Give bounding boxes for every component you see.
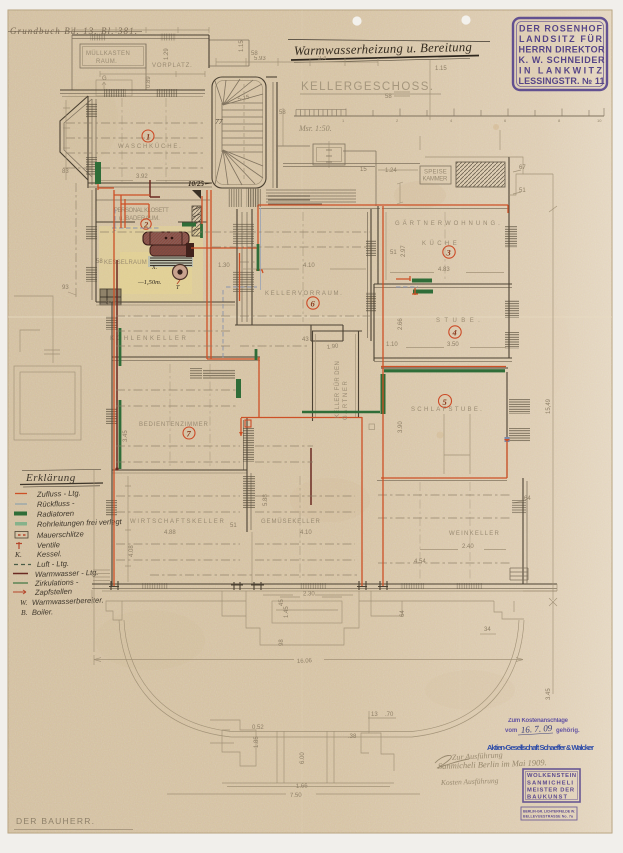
svg-text:Luft - Ltg.: Luft - Ltg. bbox=[37, 559, 69, 569]
svg-text:7.50: 7.50 bbox=[290, 793, 303, 799]
svg-text:—1,50m.: —1,50m. bbox=[137, 279, 162, 286]
svg-text:4.83: 4.83 bbox=[438, 267, 450, 273]
svg-text:45: 45 bbox=[279, 599, 285, 606]
svg-text:2.66: 2.66 bbox=[398, 318, 404, 330]
svg-text:51: 51 bbox=[390, 250, 397, 256]
svg-text:RAUM.: RAUM. bbox=[96, 59, 118, 65]
svg-text:2.4: 2.4 bbox=[318, 56, 327, 62]
svg-text:58: 58 bbox=[279, 110, 286, 116]
svg-text:BAUKUNST: BAUKUNST bbox=[527, 795, 567, 801]
svg-text:1.29: 1.29 bbox=[164, 48, 170, 60]
svg-text:LESSINGSTR. № 11: LESSINGSTR. № 11 bbox=[519, 76, 605, 86]
svg-text:2.30: 2.30 bbox=[303, 592, 315, 598]
svg-text:15,49: 15,49 bbox=[546, 398, 552, 414]
svg-text:51: 51 bbox=[230, 523, 237, 529]
svg-text:64: 64 bbox=[400, 610, 406, 617]
svg-text:3.50: 3.50 bbox=[447, 342, 459, 348]
svg-text:13: 13 bbox=[371, 712, 378, 718]
svg-text:10/25: 10/25 bbox=[188, 180, 204, 188]
svg-text:WOLKENSTEIN: WOLKENSTEIN bbox=[527, 773, 576, 779]
svg-text:VORPLATZ.: VORPLATZ. bbox=[152, 63, 193, 69]
svg-text:93: 93 bbox=[62, 285, 69, 291]
svg-text:83: 83 bbox=[62, 169, 69, 175]
svg-text:Kessel.: Kessel. bbox=[37, 549, 62, 559]
svg-text:HERRN DIREKTOR: HERRN DIREKTOR bbox=[519, 45, 606, 55]
svg-text:Zapfstellen: Zapfstellen bbox=[34, 587, 72, 597]
svg-text:1.45: 1.45 bbox=[284, 606, 290, 618]
svg-text:5.93: 5.93 bbox=[254, 56, 266, 62]
svg-text:1.15: 1.15 bbox=[435, 66, 447, 72]
svg-text:Aktien-Gesellschaft Schaeffer: Aktien-Gesellschaft Schaeffer & Walcker bbox=[487, 743, 594, 752]
svg-text:gehörig.: gehörig. bbox=[556, 728, 580, 734]
svg-text:98: 98 bbox=[279, 639, 285, 646]
svg-text:1.24: 1.24 bbox=[385, 168, 397, 174]
svg-text:KELLERGESCHOSS.: KELLERGESCHOSS. bbox=[301, 81, 435, 93]
svg-text:Msr. 1:50.: Msr. 1:50. bbox=[298, 124, 332, 133]
svg-text:PERSONAL KLOSETT: PERSONAL KLOSETT bbox=[114, 208, 170, 214]
svg-text:.70: .70 bbox=[385, 712, 394, 718]
svg-text:BERLIN-GR. LICHTERFELDE W.: BERLIN-GR. LICHTERFELDE W. bbox=[523, 810, 575, 814]
svg-text:WIRTSCHAFTSKELLER: WIRTSCHAFTSKELLER bbox=[130, 519, 225, 525]
svg-text:1.30: 1.30 bbox=[218, 263, 230, 269]
svg-text:1.66: 1.66 bbox=[296, 783, 309, 790]
svg-text:GÄRTNERWOHNUNG.: GÄRTNERWOHNUNG. bbox=[395, 220, 501, 227]
svg-text:3: 3 bbox=[446, 248, 452, 258]
svg-text:KAMMER: KAMMER bbox=[423, 177, 449, 183]
svg-text:77: 77 bbox=[215, 117, 223, 126]
svg-text:1.85: 1.85 bbox=[254, 736, 260, 748]
svg-text:WASCHKÜCHE.: WASCHKÜCHE. bbox=[118, 143, 182, 150]
svg-text:2.40: 2.40 bbox=[462, 544, 474, 550]
svg-text:GEMÜSEKELLER: GEMÜSEKELLER bbox=[261, 518, 321, 525]
svg-text:GÄRTNER: GÄRTNER bbox=[342, 380, 349, 420]
svg-text:1.15: 1.15 bbox=[239, 40, 245, 52]
svg-text:BELLEVUESTRASSE No. 7a: BELLEVUESTRASSE No. 7a bbox=[523, 815, 574, 819]
svg-text:6.00: 6.00 bbox=[300, 752, 306, 764]
svg-text:DER ROSENHOF: DER ROSENHOF bbox=[519, 24, 603, 34]
svg-text:KESSELRAUM: KESSELRAUM bbox=[104, 260, 148, 266]
svg-text:DER BAUHERR.: DER BAUHERR. bbox=[16, 816, 96, 826]
svg-text:KELLER FÜR DEN: KELLER FÜR DEN bbox=[334, 360, 341, 418]
svg-text:W.: W. bbox=[20, 598, 28, 607]
svg-text:vom: vom bbox=[505, 728, 517, 734]
svg-text:Erklärung: Erklärung bbox=[25, 472, 76, 484]
svg-text:58: 58 bbox=[96, 259, 103, 265]
svg-text:X.: X. bbox=[151, 265, 157, 271]
svg-text:51: 51 bbox=[519, 188, 526, 194]
svg-text:58: 58 bbox=[385, 94, 392, 100]
svg-text:.38: .38 bbox=[348, 734, 357, 740]
svg-text:MÜLLKASTEN: MÜLLKASTEN bbox=[86, 50, 131, 57]
svg-text:K.: K. bbox=[14, 550, 22, 559]
svg-text:5.88: 5.88 bbox=[263, 494, 269, 506]
svg-text:KELLERVORRAUM.: KELLERVORRAUM. bbox=[265, 291, 343, 297]
svg-text:4.10: 4.10 bbox=[303, 263, 315, 269]
svg-text:SCHLAFSTUBE.: SCHLAFSTUBE. bbox=[411, 407, 483, 413]
svg-text:3.45: 3.45 bbox=[123, 430, 129, 442]
svg-text:43: 43 bbox=[302, 337, 309, 343]
svg-text:10: 10 bbox=[597, 118, 602, 123]
svg-text:Radiatoren: Radiatoren bbox=[37, 509, 74, 519]
svg-text:MEISTER DER: MEISTER DER bbox=[527, 788, 575, 794]
svg-text:16.06: 16.06 bbox=[297, 658, 313, 665]
svg-text:Rückfluss -: Rückfluss - bbox=[37, 499, 75, 509]
svg-text:Zufluss - Ltg.: Zufluss - Ltg. bbox=[36, 488, 81, 499]
svg-text:3.45: 3.45 bbox=[546, 688, 552, 700]
svg-text:4.88: 4.88 bbox=[164, 530, 176, 536]
svg-text:1.10: 1.10 bbox=[386, 342, 398, 348]
svg-text:SPEISE: SPEISE bbox=[424, 170, 448, 176]
svg-text:B.: B. bbox=[21, 608, 28, 617]
svg-text:0.52: 0.52 bbox=[252, 725, 264, 731]
svg-text:4: 4 bbox=[452, 328, 457, 338]
svg-text:3.90: 3.90 bbox=[398, 421, 404, 433]
svg-text:34: 34 bbox=[484, 627, 491, 633]
svg-text:G: G bbox=[102, 76, 107, 82]
svg-text:BEDIENTENZIMMER: BEDIENTENZIMMER bbox=[139, 422, 209, 428]
svg-text:0.89: 0.89 bbox=[146, 76, 152, 88]
svg-text:K. W. SCHNEIDER: K. W. SCHNEIDER bbox=[519, 55, 606, 65]
svg-text:1: 1 bbox=[146, 132, 150, 142]
svg-text:4.08: 4.08 bbox=[129, 545, 135, 557]
svg-text:15: 15 bbox=[360, 167, 367, 173]
svg-text:KOHLENKELLER: KOHLENKELLER bbox=[110, 336, 187, 342]
svg-text:Mauerschlitze: Mauerschlitze bbox=[37, 529, 84, 540]
svg-text:Boiler.: Boiler. bbox=[32, 607, 54, 617]
svg-text:WEINKELLER: WEINKELLER bbox=[449, 531, 500, 537]
svg-text:2.97: 2.97 bbox=[401, 245, 407, 257]
svg-text:3.92: 3.92 bbox=[136, 174, 148, 180]
svg-text:4.10: 4.10 bbox=[300, 530, 312, 536]
